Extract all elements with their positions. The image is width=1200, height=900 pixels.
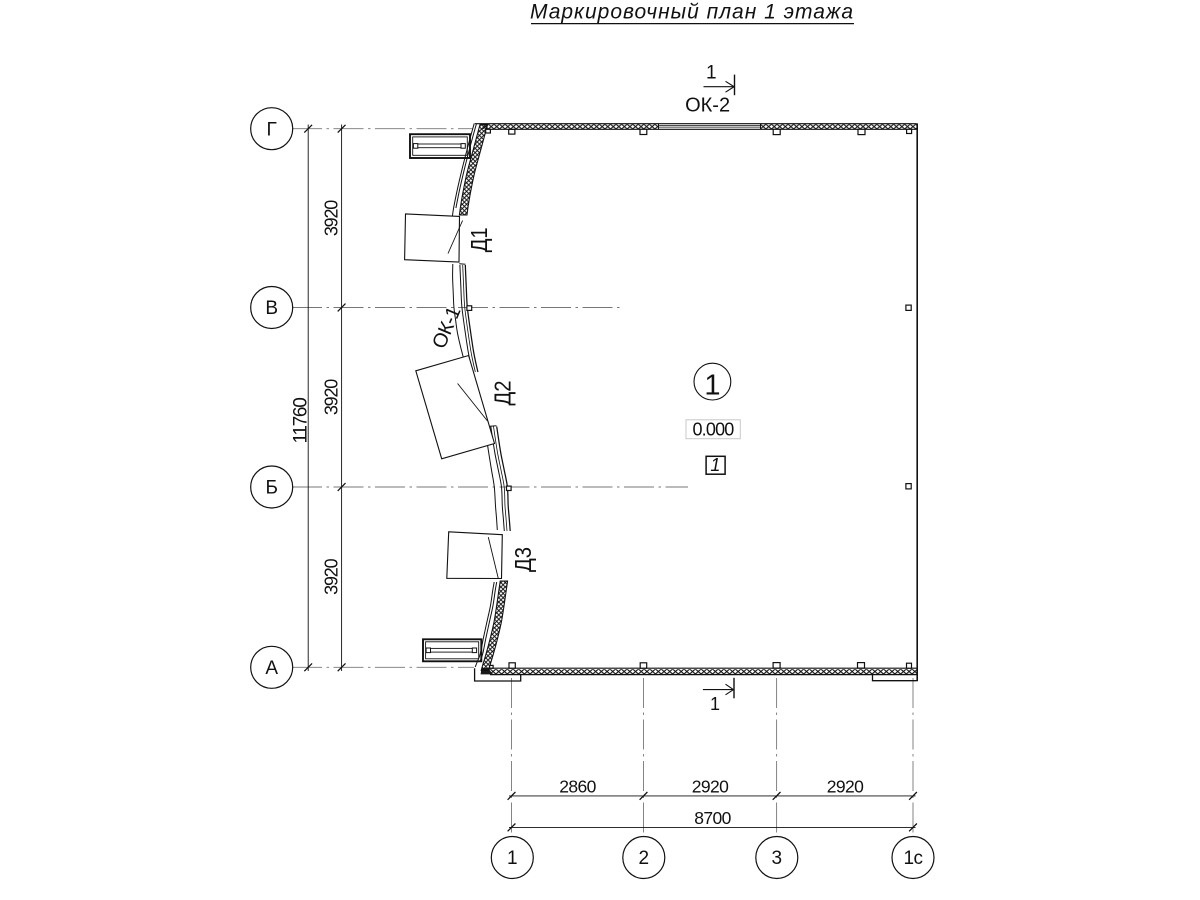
svg-text:В: В: [265, 298, 278, 319]
svg-text:Б: Б: [265, 478, 277, 499]
svg-text:1: 1: [710, 455, 720, 475]
svg-text:Д2: Д2: [489, 381, 516, 406]
svg-text:Д1: Д1: [466, 227, 493, 252]
svg-text:2860: 2860: [559, 776, 596, 796]
svg-text:1: 1: [704, 370, 720, 402]
svg-text:2920: 2920: [827, 776, 864, 796]
svg-text:0.000: 0.000: [692, 419, 734, 439]
svg-text:8700: 8700: [694, 808, 731, 828]
svg-text:А: А: [265, 658, 278, 679]
svg-text:Г: Г: [267, 119, 277, 140]
svg-text:1с: 1с: [903, 848, 922, 869]
svg-text:3: 3: [772, 848, 783, 869]
svg-text:Д3: Д3: [510, 547, 537, 572]
svg-text:1: 1: [507, 848, 518, 869]
svg-text:11760: 11760: [291, 398, 312, 444]
svg-text:2920: 2920: [692, 776, 729, 796]
svg-text:ОК-2: ОК-2: [685, 95, 730, 117]
svg-text:1: 1: [706, 63, 717, 84]
svg-text:3920: 3920: [321, 200, 341, 236]
svg-text:2: 2: [639, 848, 650, 869]
svg-text:3920: 3920: [321, 558, 341, 594]
svg-text:3920: 3920: [321, 379, 341, 415]
svg-text:1: 1: [710, 694, 720, 714]
svg-text:Маркировочный план 1 этажа: Маркировочный план 1 этажа: [530, 1, 854, 24]
